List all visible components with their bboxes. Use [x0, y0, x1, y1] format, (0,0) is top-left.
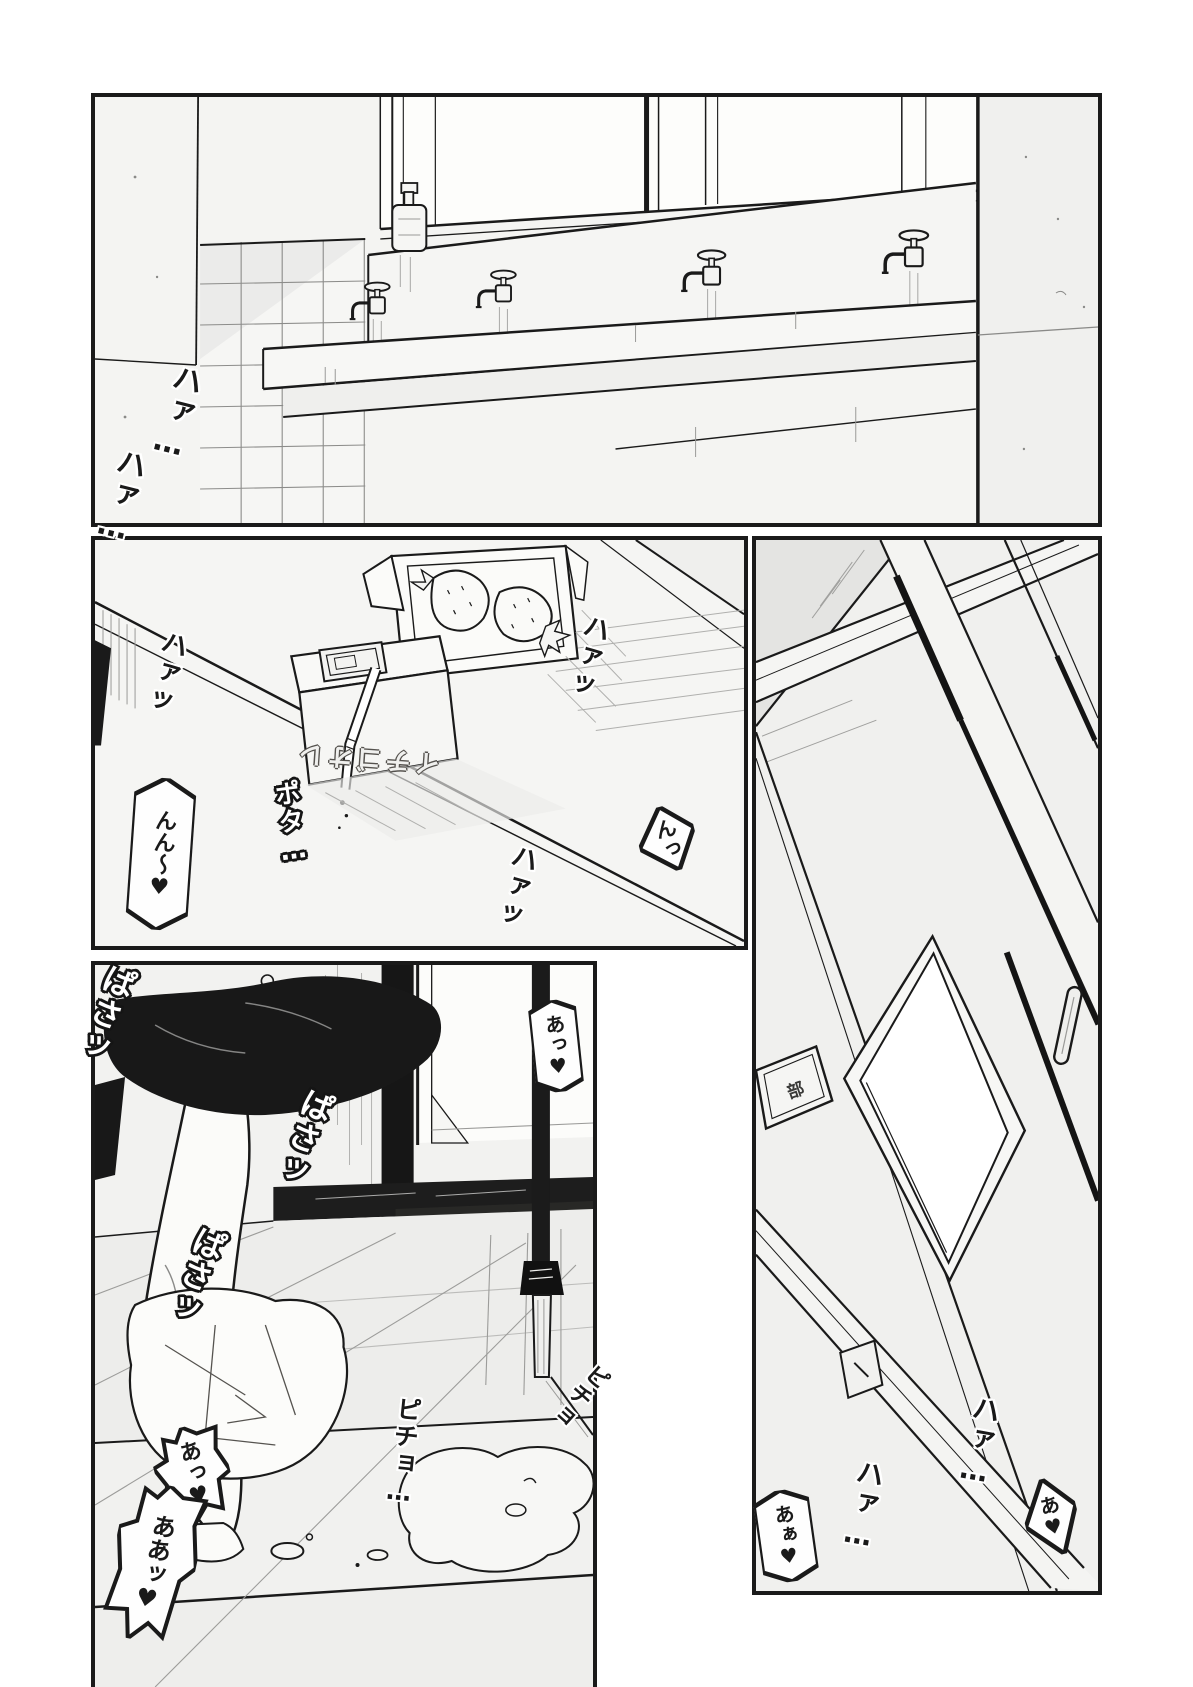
speech-bubble: あっ♥ [527, 998, 584, 1095]
snack-artwork [95, 540, 744, 946]
washroom-artwork [95, 97, 1098, 523]
panel-washroom [91, 93, 1102, 527]
door-artwork [756, 540, 1098, 1591]
speech-bubble: んん〜♥ [125, 776, 197, 932]
manga-page: ハァ… ハァ… ハァッ ポタ… ハァッ ハァッ イチゴオレ んん〜♥ んっ ぱさ… [0, 0, 1193, 1687]
panel-door [752, 536, 1102, 1595]
